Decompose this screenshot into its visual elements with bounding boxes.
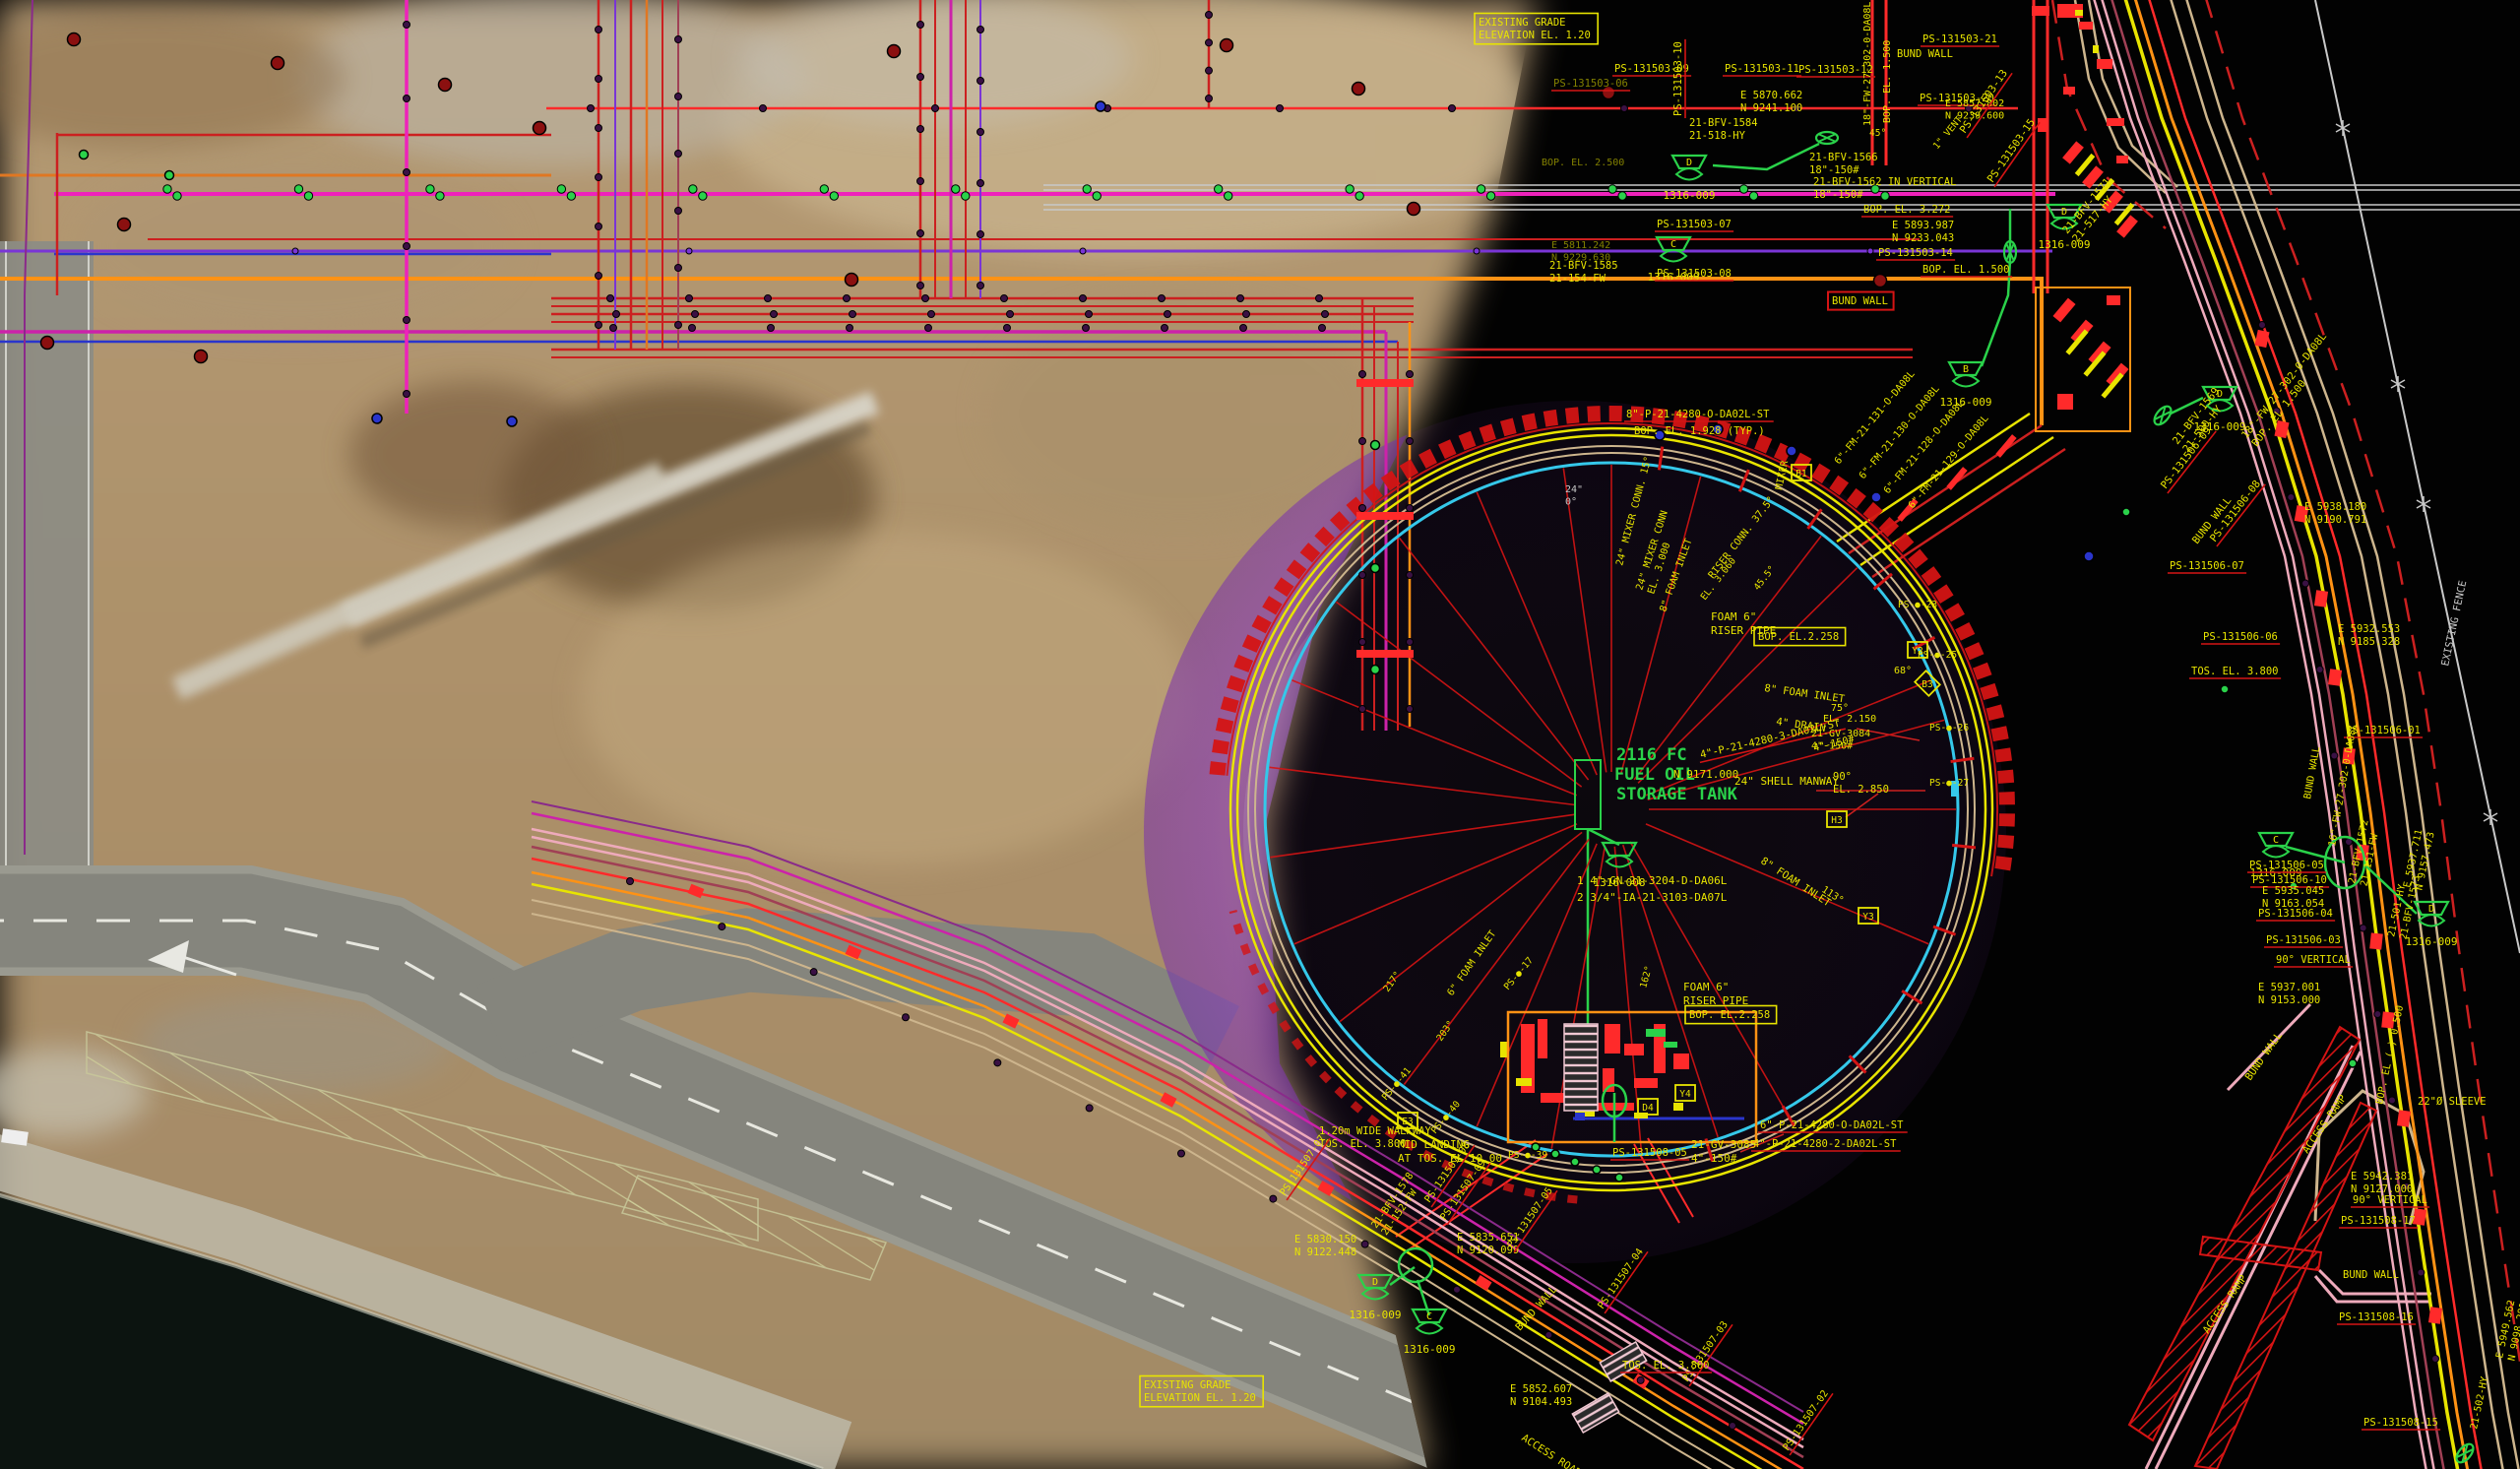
- pipe-dot: [272, 57, 284, 70]
- pipe-dot: [917, 283, 924, 289]
- pipe-dot: [699, 192, 707, 200]
- pipe-dot: [1080, 295, 1087, 302]
- pipe-dot: [596, 27, 602, 33]
- cad-label: BOP. EL.2.258: [1685, 1006, 1777, 1024]
- pipe-dot: [557, 185, 565, 193]
- pipe-dot: [977, 129, 984, 136]
- tag-text: Y3: [1862, 912, 1873, 923]
- pipe-dot: [675, 208, 682, 215]
- pipe-dot: [1551, 1150, 1559, 1158]
- cad-label-text: 68°: [1894, 666, 1912, 676]
- instrument-tag: 1316-009: [2406, 935, 2458, 948]
- pipe-dot: [596, 76, 602, 83]
- cad-block: [1538, 1019, 1547, 1058]
- pipe-dot: [719, 924, 725, 930]
- cad-block: [2093, 45, 2099, 53]
- pipe-dot: [689, 325, 696, 332]
- cad-label: PS-●-26: [1929, 723, 1969, 734]
- pipe-dot: [1319, 325, 1326, 332]
- cad-label: PS-131506-05: [2247, 860, 2326, 872]
- pipe-dot: [1359, 438, 1366, 445]
- pipe-dot: [2331, 752, 2338, 759]
- pipe-dot: [1224, 192, 1231, 200]
- pipe-dot: [820, 185, 828, 193]
- cad-label-text: E 5935.045N 9163.054: [2262, 885, 2324, 910]
- cad-block: [1646, 1029, 1666, 1037]
- pipe-dot: [163, 185, 171, 193]
- pipe-dot: [1359, 505, 1366, 512]
- pipe-dot: [810, 969, 817, 976]
- instrument-letter: C: [1426, 1311, 1432, 1322]
- pipe-dot: [977, 283, 984, 289]
- cad-label-text: E 5932.553N 9185.328: [2338, 623, 2400, 648]
- pipe-dot: [2084, 551, 2094, 561]
- pipe-dot: [1080, 248, 1086, 254]
- pipe-dot: [1739, 185, 1747, 193]
- pipe-dot: [372, 414, 382, 423]
- pipe-dot: [1408, 203, 1420, 216]
- pipe-dot: [917, 22, 924, 29]
- pipe-dot: [917, 178, 924, 185]
- pipe-dot: [294, 185, 302, 193]
- cad-label: PS-●-25: [1918, 650, 1957, 661]
- pipe-dot: [1240, 325, 1247, 332]
- pipe-dot: [977, 27, 984, 33]
- cad-block: [2097, 59, 2112, 69]
- cad-label-text: PS-●-23: [1898, 600, 1937, 610]
- pipe-dot: [596, 273, 602, 280]
- cad-label-text: E 5942.381N 9127.000: [2351, 1171, 2413, 1195]
- pipe-dot: [1214, 185, 1222, 193]
- cad-label: PS-131506-06: [2201, 631, 2280, 644]
- cad-label-text: 4"-P-21-4280-2-DA02L-ST: [1753, 1138, 1897, 1150]
- cad-label: PS-131508-17: [2339, 1215, 2418, 1228]
- cad-label-text: PS-●-39: [1508, 1150, 1547, 1161]
- pipe-dot: [1871, 492, 1881, 502]
- pipe-dot: [1371, 666, 1380, 674]
- cad-block: [2397, 1110, 2411, 1127]
- pipe-dot: [404, 391, 410, 398]
- cad-label: 4"-P-21-4280-2-DA02L-ST: [1751, 1138, 1901, 1151]
- cad-label-text: E 5938.180N 9190.791: [2304, 501, 2366, 526]
- cad-block: [1356, 650, 1414, 658]
- cad-block: [1673, 1054, 1689, 1069]
- pipe-dot: [1346, 185, 1354, 193]
- cad-label-text: BOP. EL. 1.928 (TYP.): [1634, 425, 1765, 437]
- cad-label-text: PS-131508-05: [1612, 1147, 1687, 1159]
- cad-label-text: PS-131503-10: [1672, 41, 1684, 116]
- pipe-dot: [1159, 295, 1165, 302]
- cad-label: PS-131508-15: [2362, 1417, 2440, 1430]
- cad-label: PS-131503-14: [1876, 247, 1955, 260]
- pipe-dot: [1206, 96, 1213, 102]
- cad-label: 75°: [1831, 703, 1849, 714]
- cad-label-text: BOP. EL. 2.500: [1542, 158, 1624, 168]
- cad-label-text: 90° VERTICAL: [2276, 954, 2351, 966]
- cad-block: [1356, 512, 1414, 520]
- instrument-letter: B: [1963, 364, 1969, 375]
- pipe-dot: [1608, 185, 1616, 193]
- cad-block: [2038, 118, 2047, 132]
- cad-label: E 5942.381N 9127.000: [2351, 1171, 2413, 1195]
- cad-label: E 5870.662N 9241.100: [1740, 90, 1802, 114]
- cad-label: PS-131503-11: [1723, 63, 1801, 76]
- cad-label: STORAGE TANK: [1616, 785, 1738, 804]
- pipe-dot: [2302, 580, 2309, 587]
- cad-label-text: E 5830.150N 9122.448: [1294, 1234, 1356, 1258]
- pipe-dot: [165, 171, 174, 180]
- cad-block: [2107, 118, 2124, 126]
- pipe-dot: [607, 295, 614, 302]
- cad-label-text: E 5870.662N 9241.100: [1740, 90, 1802, 114]
- pipe-dot: [1474, 248, 1480, 254]
- pipe-dot: [850, 311, 856, 318]
- pipe-dot: [1206, 12, 1213, 19]
- pipe-dot: [994, 1059, 1001, 1066]
- pipe-dot: [1359, 371, 1366, 378]
- pipe-dot: [1787, 446, 1796, 456]
- pipe-dot: [1359, 706, 1366, 713]
- instrument-letter: C: [2273, 835, 2279, 846]
- pipe-dot: [675, 36, 682, 43]
- pipe-dot: [41, 337, 54, 350]
- pipe-dot: [768, 325, 775, 332]
- pipe-dot: [439, 79, 452, 92]
- cad-label-text: TOS. EL. 3.800: [2191, 666, 2279, 677]
- cad-label: BOP. EL. 1.500: [1882, 40, 1893, 123]
- pipe-dot: [977, 180, 984, 187]
- cad-label-text: PS-131503-14: [1878, 247, 1953, 259]
- pipe-dot: [118, 219, 131, 231]
- pipe-dot: [173, 192, 181, 200]
- cad-label-text: 8"-P-21-4280-O-DA02L-ST: [1626, 409, 1770, 420]
- cad-label: EL. 2.150: [1823, 714, 1876, 725]
- cad-block: [2075, 10, 2083, 16]
- pipe-dot: [596, 174, 602, 181]
- cad-block: [2328, 669, 2342, 686]
- cad-label: PS-131508-05: [1610, 1147, 1689, 1160]
- pipe-dot: [1618, 192, 1626, 200]
- cad-label: PS-131503-08: [1655, 268, 1733, 281]
- cad-label: PS-131506-03: [2264, 934, 2343, 947]
- pipe-dot: [1749, 192, 1757, 200]
- pipe-dot: [2259, 322, 2266, 329]
- pipe-dot: [1206, 67, 1213, 74]
- pipe-dot: [692, 311, 699, 318]
- cad-block: [2116, 156, 2128, 163]
- pipe-dot: [1359, 639, 1366, 646]
- cad-label-text: PS-131503-07: [1657, 219, 1732, 230]
- pipe-dot: [1237, 295, 1244, 302]
- cad-label-text: 45°: [1869, 128, 1886, 139]
- pipe-dot: [1615, 1174, 1623, 1182]
- instrument-letter: D: [1372, 1277, 1378, 1288]
- cad-label: E 5937.001N 9153.000: [2258, 982, 2320, 1006]
- pipe-dot: [1178, 1150, 1185, 1157]
- tag-text: B3: [1921, 679, 1932, 690]
- pipe-dot: [846, 274, 858, 287]
- tag-text: D4: [1642, 1103, 1654, 1114]
- pipe-dot: [1361, 1241, 1368, 1247]
- cad-label: BOP. EL.2.258: [1754, 628, 1846, 646]
- pipe-dot: [2122, 508, 2130, 516]
- pipe-dot: [1355, 192, 1363, 200]
- cad-label-text: E 5937.001N 9153.000: [2258, 982, 2320, 1006]
- pipe-dot: [1083, 185, 1091, 193]
- pipe-dot: [1637, 1376, 1644, 1383]
- cad-label: PS-131503-10: [1672, 39, 1685, 118]
- pipe-dot: [1221, 39, 1233, 52]
- cad-label-text: PS-●-25: [1918, 650, 1957, 661]
- pipe-dot: [977, 231, 984, 238]
- pipe-dot: [847, 325, 853, 332]
- cad-label-text: BOP. EL. 3.272: [1863, 204, 1951, 216]
- pipe-dot: [2418, 1269, 2425, 1276]
- cad-label: 90° VERTICAL: [2274, 954, 2353, 967]
- pipe-dot: [1545, 1331, 1552, 1338]
- pipe-dot: [404, 243, 410, 250]
- cad-label: TOS. EL. 3.800: [2189, 666, 2281, 678]
- cad-block: [1575, 1113, 1585, 1120]
- instrument-letter: C: [1670, 239, 1676, 250]
- pipe-dot: [925, 325, 932, 332]
- cad-label: E 5852.607N 9104.493: [1510, 1383, 1572, 1408]
- cad-label: E 5938.180N 9190.791: [2304, 501, 2366, 526]
- cad-label: 18"-FW-27-302-0-DA08L: [1862, 2, 1873, 126]
- pipe-dot: [917, 74, 924, 81]
- cad-label: BOP. EL. 1.500: [1921, 264, 2012, 277]
- cad-label: PS-131508-16: [2337, 1311, 2416, 1324]
- pipe-dot: [596, 322, 602, 329]
- site-plan-drawing: D1316-009C1316-009B1316-009D1316-009D131…: [0, 0, 2520, 1469]
- instrument-letter: D: [2428, 904, 2434, 915]
- cad-label-text: PS-131503-21: [1922, 33, 1997, 45]
- cad-label-text: PS-●-26: [1929, 723, 1969, 734]
- cad-label: BUND WALL: [2343, 1269, 2399, 1281]
- cad-label-text: PS-●-27: [1929, 778, 1969, 789]
- pipe-dot: [2316, 667, 2323, 673]
- pipe-dot: [404, 96, 410, 102]
- cad-block: [1605, 1024, 1620, 1054]
- cad-label-text: PS-131508-17: [2341, 1215, 2416, 1227]
- cad-label: 24" SHELL MANWAY: [1734, 775, 1839, 788]
- pipe-dot: [689, 185, 697, 193]
- pipe-dot: [1206, 39, 1213, 46]
- instrument-tag: 1316-009: [1940, 396, 1992, 409]
- cad-label-text: PS-131508-15: [2363, 1417, 2438, 1429]
- pipe-dot: [675, 265, 682, 272]
- cad-label-text: 2116 FC: [1616, 745, 1687, 765]
- cad-block: [2057, 394, 2073, 410]
- instrument-letter: D: [2061, 207, 2067, 218]
- pipe-dot: [1881, 192, 1889, 200]
- cad-label-text: BUND WALL: [2343, 1269, 2399, 1281]
- cad-label-text: PS-131503-08: [1657, 268, 1732, 280]
- cad-block: [2369, 932, 2383, 949]
- pipe-dot: [1086, 311, 1093, 318]
- cad-label-text: 6"-P-21-4280-O-DA02L-ST: [1760, 1119, 1904, 1131]
- pipe-dot: [1162, 325, 1168, 332]
- pipe-dot: [1165, 311, 1171, 318]
- pipe-dot: [932, 105, 939, 112]
- cad-label-text: 1 4"-GN-21-3204-D-DA06L: [1577, 874, 1728, 887]
- cad-label: PS-●-23: [1898, 600, 1937, 610]
- pipe-dot: [917, 126, 924, 133]
- pipe-dot: [675, 94, 682, 100]
- pipe-dot: [1486, 192, 1494, 200]
- cad-label: PS-131506-07: [2168, 560, 2246, 573]
- cad-block: [1664, 1042, 1677, 1048]
- cad-block: [2063, 87, 2075, 95]
- pipe-dot: [195, 351, 208, 363]
- pipe-dot: [1001, 295, 1008, 302]
- cad-label: 8"-P-21-4280-O-DA02L-ST: [1624, 409, 1774, 421]
- pipe-dot: [2349, 1059, 2357, 1067]
- cad-label: PS-131503-07: [1655, 219, 1733, 231]
- pipe-dot: [404, 317, 410, 324]
- pipe-dot: [917, 230, 924, 237]
- cad-label: PS-131503-21: [1921, 33, 1999, 46]
- cad-label-text: PS-131503-11: [1725, 63, 1799, 75]
- cad-label-text: BOP. EL. 1.500: [1882, 40, 1893, 123]
- cad-label: 45°: [1869, 128, 1886, 139]
- cad-label: TOS. EL. 3.800: [1620, 1360, 1712, 1373]
- cad-label-text: 75°: [1831, 703, 1849, 714]
- pipe-dot: [977, 78, 984, 85]
- pipe-dot: [1083, 325, 1090, 332]
- pipe-dot: [765, 295, 772, 302]
- cad-label: BOP. EL. 2.500: [1542, 158, 1624, 168]
- pipe-dot: [2288, 494, 2295, 501]
- cad-label: E 5830.150N 9122.448: [1294, 1234, 1356, 1258]
- pipe-dot: [1407, 438, 1414, 445]
- cad-block: [2079, 22, 2093, 30]
- pipe-dot: [1007, 311, 1014, 318]
- pipe-dot: [1322, 311, 1329, 318]
- cad-block: [1673, 1103, 1683, 1111]
- cad-label-text: BOP. EL.2.258: [1758, 631, 1839, 643]
- cad-label-text: 2 3/4"-IA-21-3103-DA07L: [1577, 891, 1728, 904]
- tag-text: Y4: [1679, 1089, 1691, 1100]
- cad-block: [2032, 6, 2049, 16]
- pipe-dot: [426, 185, 434, 193]
- cad-label-text: PS-131506-05: [2249, 860, 2324, 871]
- pipe-dot: [404, 22, 410, 29]
- pipe-dot: [1454, 1286, 1461, 1293]
- pipe-dot: [613, 311, 620, 318]
- pipe-dot: [1571, 1158, 1579, 1166]
- cad-label-text: PS-131508-16: [2339, 1311, 2414, 1323]
- instrument-tag: 1316-009: [1350, 1309, 1402, 1321]
- pipe-dot: [1371, 564, 1380, 573]
- pipe-dot: [1874, 275, 1887, 287]
- pipe-dot: [2360, 925, 2366, 931]
- pipe-dot: [610, 325, 617, 332]
- cad-label-text: PS-131506-07: [2170, 560, 2244, 572]
- cad-label: 2116 FC: [1616, 745, 1687, 765]
- pipe-dot: [292, 248, 298, 254]
- cad-label-text: BOP. EL.2.258: [1689, 1009, 1770, 1021]
- tag-text: B1: [1795, 469, 1807, 479]
- pipe-dot: [1407, 505, 1414, 512]
- pipe-dot: [436, 192, 444, 200]
- cad-label: PS-131506-04: [2256, 908, 2335, 921]
- pipe-dot: [1093, 192, 1101, 200]
- pipe-dot: [1621, 105, 1628, 112]
- pipe-dot: [1593, 1166, 1601, 1174]
- pipe-dot: [596, 224, 602, 230]
- pipe-dot: [1243, 311, 1250, 318]
- cad-label-text: BUND WALL: [1897, 48, 1953, 60]
- pipe-dot: [1316, 295, 1323, 302]
- cad-label: 90° VERTICAL: [2351, 1194, 2429, 1207]
- pipe-dot: [68, 33, 81, 46]
- pipe-dot: [686, 248, 692, 254]
- cad-label-text: 22"Ø SLEEVE: [2418, 1096, 2487, 1108]
- pipe-dot: [1407, 371, 1414, 378]
- cad-label-text: BUND WALL: [1832, 295, 1888, 307]
- instrument-letter: D: [1686, 158, 1692, 168]
- pipe-dot: [928, 311, 935, 318]
- cad-site-plan-viewport[interactable]: D1316-009C1316-009B1316-009D1316-009D131…: [0, 0, 2520, 1469]
- instrument-tag: 1316-009: [1404, 1343, 1456, 1356]
- cad-label: 6"-P-21-4280-O-DA02L-ST: [1758, 1119, 1908, 1132]
- cad-label-text: 18"-FW-27-302-0-DA08L: [1862, 2, 1873, 126]
- cad-block: [1624, 1044, 1644, 1055]
- instrument-tag: 1316-009: [1664, 189, 1716, 202]
- cad-label-text: PS-131506-06: [2203, 631, 2278, 643]
- cad-label-text: BOP. EL. 1.500: [1922, 264, 2010, 276]
- cad-block: [2107, 295, 2120, 305]
- pipe-dot: [2374, 1011, 2381, 1018]
- pipe-dot: [2221, 685, 2229, 693]
- cad-block: [2314, 590, 2328, 607]
- cad-label-text: 90° VERTICAL: [2353, 1194, 2427, 1206]
- pipe-dot: [304, 192, 312, 200]
- pipe-dot: [675, 322, 682, 329]
- pipe-dot: [760, 105, 767, 112]
- cad-label-text: PS-131506-04: [2258, 908, 2333, 920]
- cad-label: BOP. EL. 3.272: [1861, 204, 1953, 217]
- cad-block: [1356, 379, 1414, 387]
- cad-block: [2428, 1307, 2442, 1324]
- pipe-dot: [507, 416, 517, 426]
- cad-label-text: PS-131506-03: [2266, 934, 2341, 946]
- pipe-dot: [1353, 83, 1365, 96]
- pipe-dot: [1004, 325, 1011, 332]
- cad-label: BUND WALL: [1828, 292, 1894, 310]
- cad-label-text: PS-131503-06: [1553, 78, 1628, 90]
- pipe-dot: [596, 125, 602, 132]
- cad-label: N 9171.000: [1673, 768, 1738, 781]
- pipe-dot: [1371, 441, 1380, 450]
- pipe-dot: [80, 151, 89, 160]
- cad-label-text: E 5852.607N 9104.493: [1510, 1383, 1572, 1408]
- pipe-dot: [844, 295, 850, 302]
- pipe-dot: [567, 192, 575, 200]
- pipe-dot: [588, 105, 595, 112]
- pipe-dot: [1096, 101, 1105, 111]
- cad-label: BOP. EL. 1.928 (TYP.): [1634, 425, 1765, 437]
- pipe-dot: [534, 122, 546, 135]
- cad-label: E 5893.987N 9233.043: [1892, 220, 1954, 244]
- pipe-dot: [404, 169, 410, 176]
- pipe-dot: [2432, 1356, 2439, 1363]
- pipe-dot: [1270, 1195, 1277, 1202]
- pipe-dot: [922, 295, 929, 302]
- pipe-dot: [1867, 248, 1873, 254]
- cad-label-text: EL. 2.150: [1823, 714, 1876, 725]
